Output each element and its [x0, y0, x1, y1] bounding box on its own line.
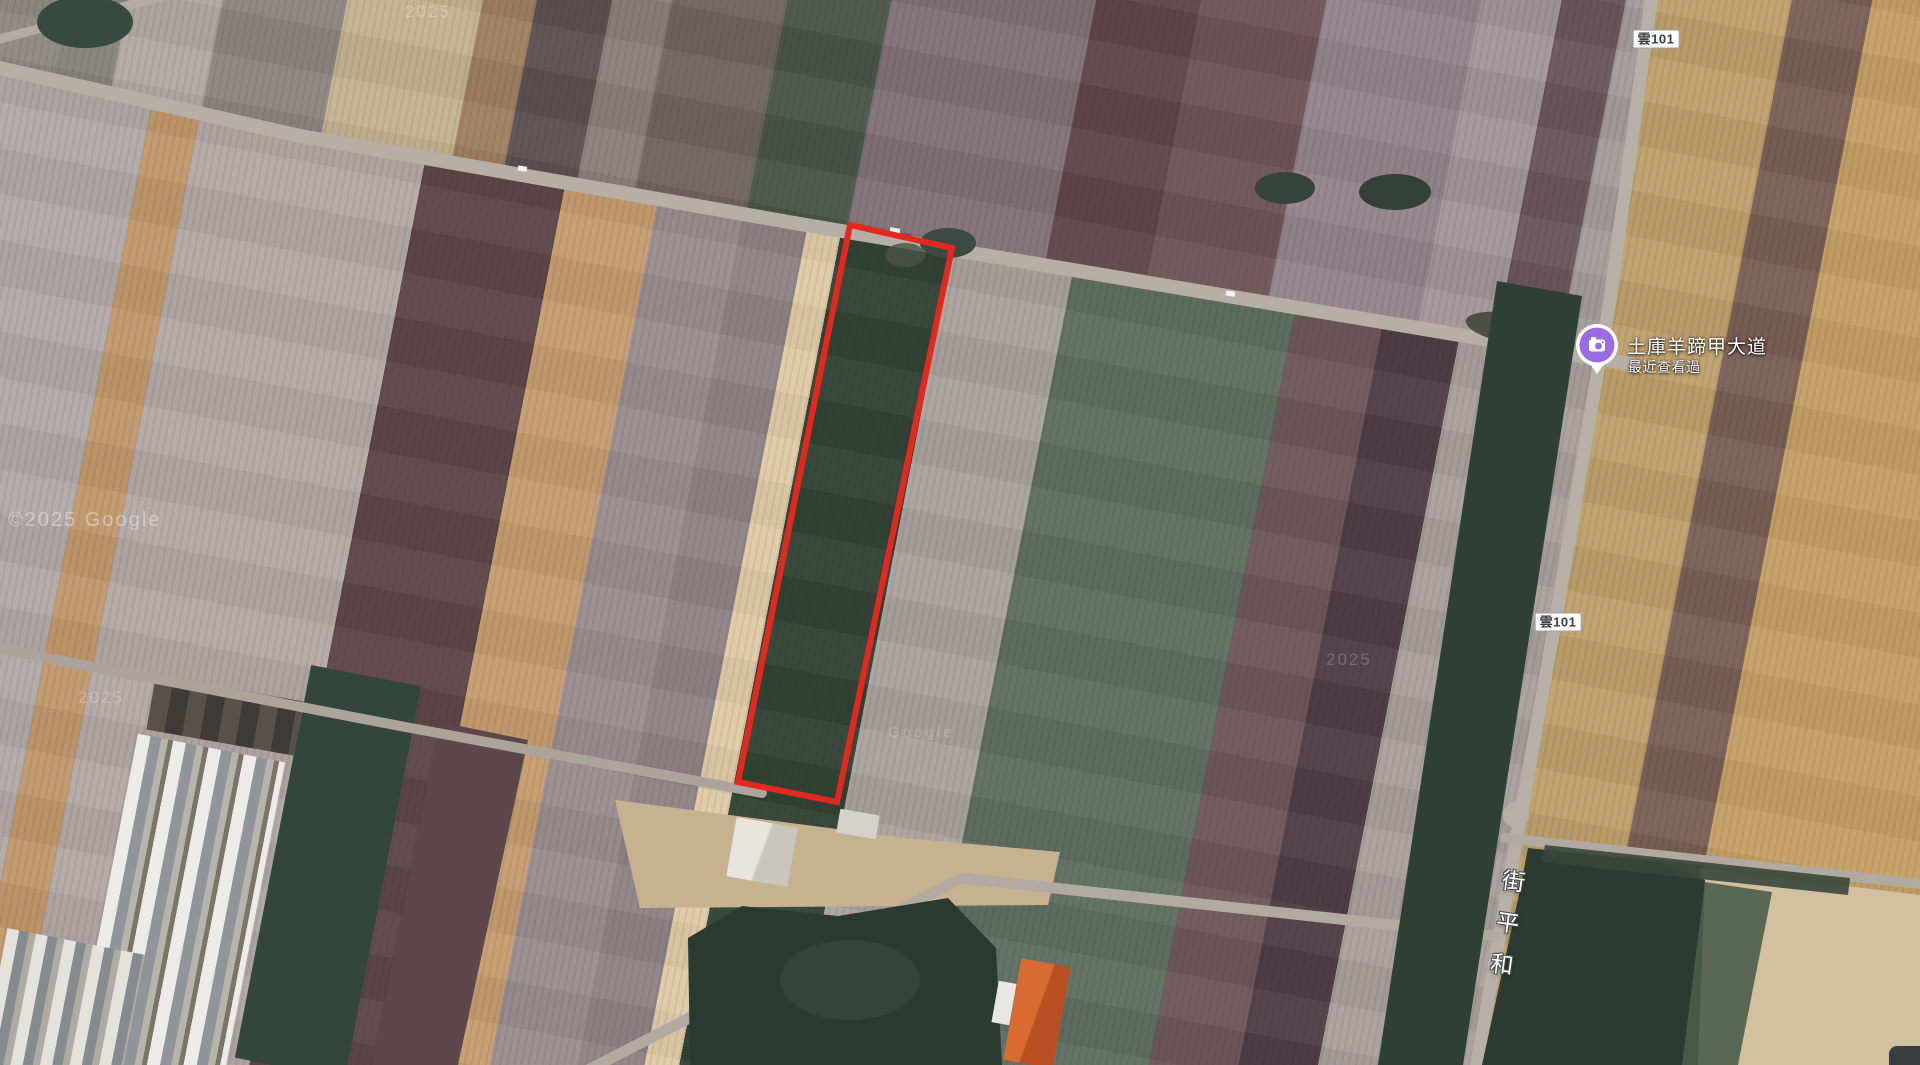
satellite-map-canvas[interactable]: 2025 ©2025 Google 2025 2025 Google 雲101 … — [0, 0, 1920, 1065]
place-label-subtitle: 最近查看過 — [1628, 357, 1701, 377]
street-label-char: 和 — [1488, 944, 1516, 981]
street-label-char: 街 — [1500, 861, 1528, 898]
place-label-title[interactable]: 土庫羊蹄甲大道 — [1627, 332, 1767, 359]
watermark-year: 2025 — [78, 688, 124, 708]
watermark-copyright: ©2025 Google — [8, 509, 161, 532]
route-shield-yun101-top: 雲101 — [1633, 30, 1680, 49]
watermark-year: 2025 — [1326, 650, 1372, 670]
camera-icon — [1574, 322, 1620, 378]
place-pin[interactable] — [1574, 322, 1620, 383]
watermark-brand: Google — [888, 724, 954, 741]
route-shield-yun101-mid: 雲101 — [1535, 613, 1582, 632]
street-label-char: 平 — [1494, 903, 1522, 940]
corner-ui-chip — [1889, 1046, 1920, 1065]
watermark-year: 2025 — [405, 2, 451, 22]
white-barn — [726, 817, 797, 887]
